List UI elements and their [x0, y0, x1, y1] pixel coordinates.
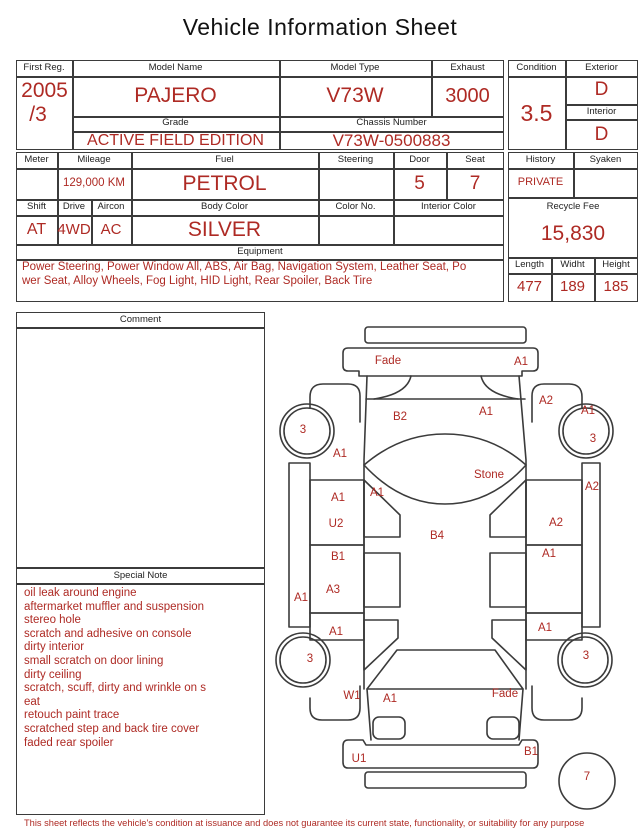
mileage-label: Mileage: [57, 152, 131, 168]
damage-label: A2: [585, 481, 599, 493]
damage-label: A3: [326, 584, 340, 596]
license-plate: [365, 772, 526, 788]
rear-bumper: [343, 348, 538, 376]
exterior-label: Exterior: [565, 60, 638, 76]
left-door-window: [364, 553, 400, 607]
width-label: Widht: [551, 257, 594, 273]
damage-label: B1: [331, 551, 345, 563]
damage-label: A2: [549, 517, 563, 529]
damage-label: A1: [383, 693, 397, 705]
rear-glass-arc-left: [374, 376, 411, 399]
rear-spoiler: [365, 327, 526, 343]
damage-label: A1: [333, 448, 347, 460]
diagram-labels: FadeA1B2A1A2A133A1StoneA1A1U2A2A2B4B1A1A…: [294, 355, 599, 783]
meter-label: Meter: [16, 152, 57, 168]
rear-glass-arc-right: [481, 376, 518, 399]
left-front-wheel-rim: [280, 637, 326, 683]
damage-label: Fade: [375, 355, 401, 367]
left-front-window: [364, 620, 398, 670]
damage-label: A1: [331, 492, 345, 504]
right-headlight: [487, 717, 519, 739]
fuel-label: Fuel: [131, 152, 318, 168]
damage-label: A1: [479, 406, 493, 418]
damage-label: 3: [583, 650, 589, 662]
shift-value: AT: [16, 215, 57, 244]
damage-label: A1: [514, 356, 528, 368]
seat-label: Seat: [446, 152, 504, 168]
right-front-window: [492, 620, 526, 670]
right-door-window: [490, 553, 526, 607]
damage-label: 3: [590, 433, 596, 445]
windshield: [367, 650, 523, 689]
left-rear-wheel: [280, 404, 334, 458]
width-value: 189: [551, 273, 594, 300]
vehicle-information-sheet: Vehicle Information Sheet First Reg. 200…: [0, 0, 640, 835]
equipment-label: Equipment: [16, 244, 504, 259]
interior-color-label: Interior Color: [393, 199, 504, 215]
history-label: History: [508, 152, 573, 168]
interior-grade: D: [565, 119, 638, 150]
shift-label: Shift: [16, 199, 57, 215]
body-right-edge: [519, 376, 526, 689]
damage-label: A1: [370, 487, 384, 499]
damage-label: 3: [307, 653, 313, 665]
divider: [16, 583, 265, 585]
damage-label: A1: [542, 548, 556, 560]
door-label: Door: [393, 152, 446, 168]
damage-label: A2: [539, 395, 553, 407]
condition-score: 3.5: [508, 76, 565, 150]
special-note-label: Special Note: [16, 568, 265, 583]
grade-value: ACTIVE FIELD EDITION: [72, 131, 279, 150]
equipment-list: Power Steering, Power Window All, ABS, A…: [22, 261, 500, 288]
front-bumper: [343, 740, 538, 768]
left-rear-wheel-rim: [284, 408, 330, 454]
disclaimer-text: This sheet reflects the vehicle's condit…: [24, 818, 630, 828]
history-value: PRIVATE: [508, 168, 573, 197]
model-name-value: PAJERO: [72, 76, 279, 116]
grade-label: Grade: [72, 115, 279, 131]
condition-label: Condition: [508, 60, 565, 76]
syaken-label: Syaken: [573, 152, 638, 168]
seat-value: 7: [446, 168, 504, 199]
car-damage-diagram: FadeA1B2A1A2A133A1StoneA1A1U2A2A2B4B1A1A…: [270, 310, 640, 815]
exhaust-value: 3000: [431, 76, 504, 116]
hood-left-edge: [367, 689, 371, 740]
first-reg-year: 2005: [16, 78, 73, 104]
model-name-label: Model Name: [72, 60, 279, 76]
damage-label: B1: [524, 746, 538, 758]
damage-label: 3: [300, 424, 306, 436]
body-color-value: SILVER: [131, 215, 318, 244]
car-outline: [276, 327, 615, 809]
right-front-door-panel: [526, 480, 582, 545]
color-no-label: Color No.: [318, 199, 393, 215]
first-reg-month: /3: [16, 102, 60, 128]
page-title: Vehicle Information Sheet: [0, 14, 640, 41]
first-reg-label: First Reg.: [16, 60, 72, 76]
damage-label: U2: [329, 518, 344, 530]
drive-label: Drive: [57, 199, 91, 215]
left-headlight: [373, 717, 405, 739]
damage-label: U1: [352, 753, 367, 765]
interior-label: Interior: [565, 104, 638, 120]
height-label: Height: [594, 257, 638, 273]
divider: [16, 327, 265, 329]
exterior-grade: D: [565, 76, 638, 104]
door-value: 5: [393, 168, 446, 199]
chassis-number-label: Chassis Number: [279, 115, 504, 131]
fuel-value: PETROL: [131, 168, 318, 199]
left-front-wheel: [276, 633, 330, 687]
damage-label: Stone: [474, 469, 504, 481]
body-color-label: Body Color: [131, 199, 318, 215]
damage-label: W1: [343, 690, 360, 702]
chassis-number-value: V73W-0500883: [279, 131, 504, 150]
aircon-value: AC: [91, 215, 131, 244]
damage-label: B4: [430, 530, 445, 542]
damage-label: Fade: [492, 688, 518, 700]
damage-label: 7: [584, 771, 590, 783]
special-note-list: oil leak around engine aftermarket muffl…: [24, 587, 260, 750]
damage-label: A1: [538, 622, 552, 634]
damage-label: A1: [294, 592, 308, 604]
damage-label: B2: [393, 411, 407, 423]
comment-label: Comment: [16, 312, 265, 327]
left-front-door-panel: [310, 480, 364, 545]
damage-label: A1: [581, 405, 595, 417]
recycle-fee-value: 15,830: [508, 213, 638, 255]
mileage-value: 129,000 KM: [57, 168, 131, 199]
steering-label: Steering: [318, 152, 393, 168]
comment-box: [16, 312, 265, 568]
left-rear-fender: [310, 384, 360, 422]
exhaust-label: Exhaust: [431, 60, 504, 76]
aircon-label: Aircon: [91, 199, 131, 215]
damage-label: A1: [329, 626, 343, 638]
length-label: Length: [508, 257, 551, 273]
right-quarter-window: [490, 480, 526, 537]
model-type-label: Model Type: [279, 60, 431, 76]
height-value: 185: [594, 273, 638, 300]
right-front-fender: [532, 686, 582, 720]
drive-value: 4WD: [57, 215, 91, 244]
length-value: 477: [508, 273, 551, 300]
model-type-value: V73W: [279, 76, 431, 116]
